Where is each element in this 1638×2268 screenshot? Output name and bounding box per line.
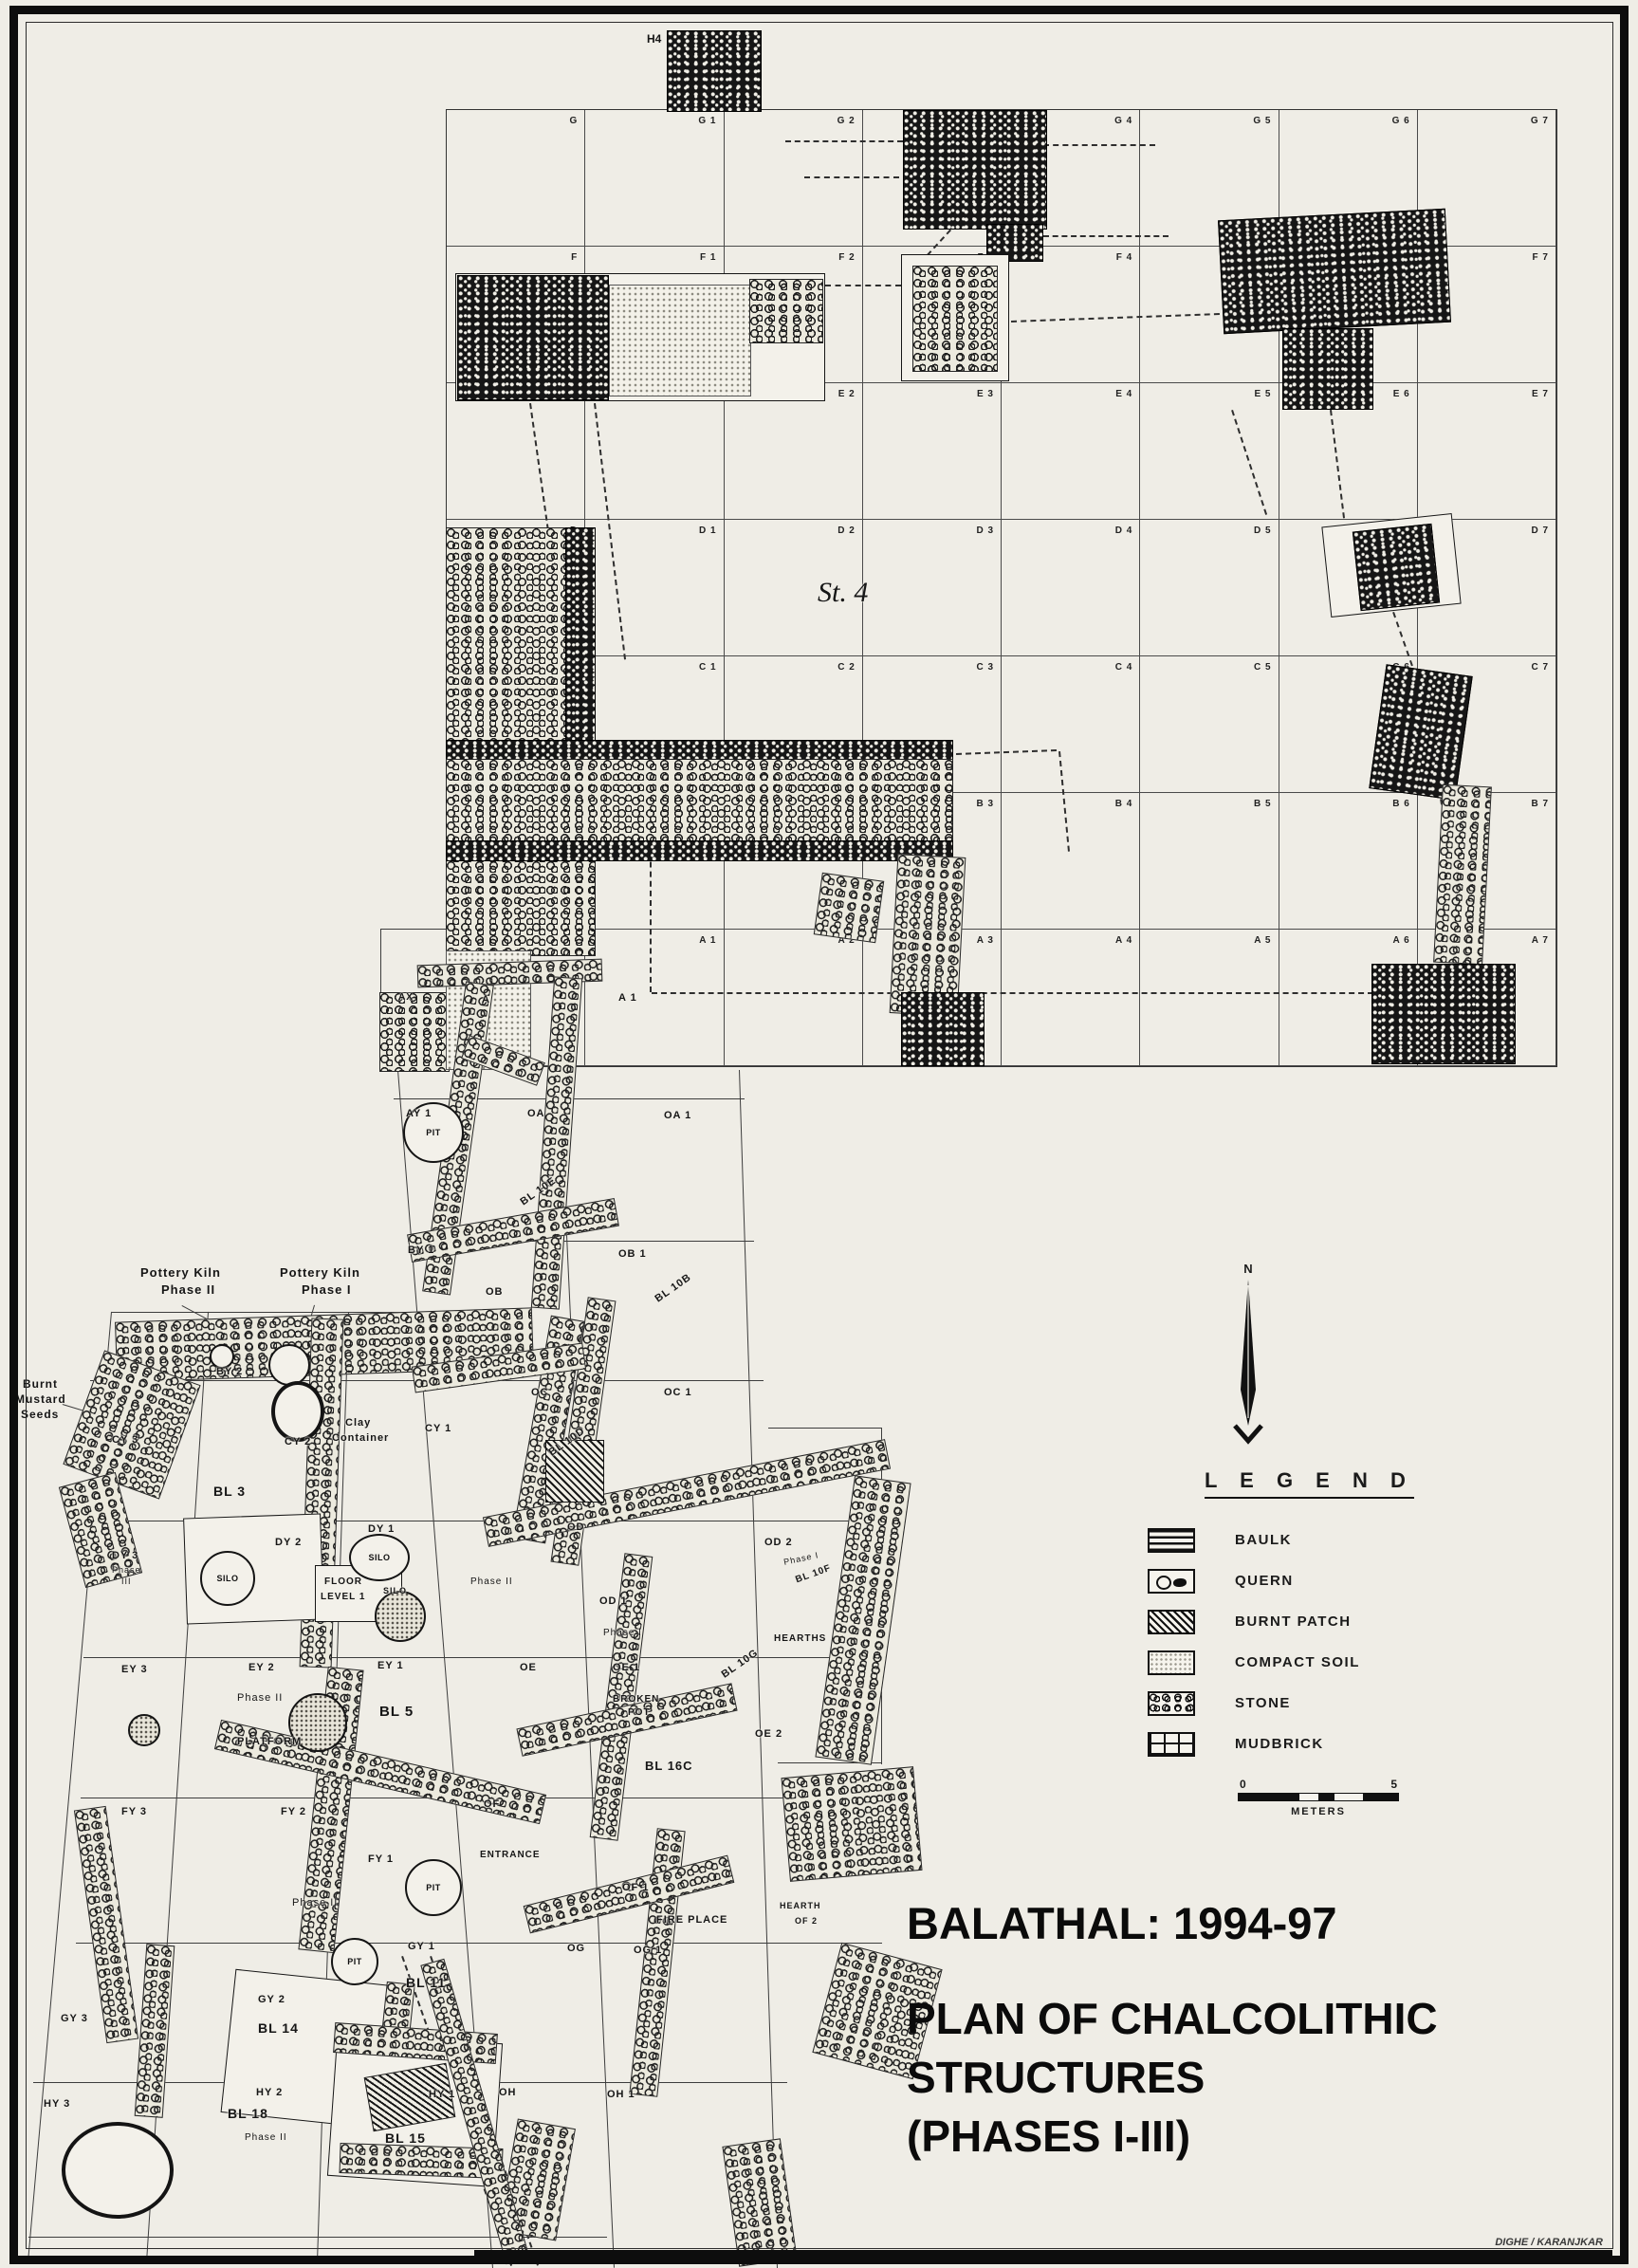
wall-feature (1218, 209, 1451, 334)
grid-cell-label: C 3 (976, 662, 994, 673)
grid-cell-label: C 7 (1531, 662, 1549, 673)
grid-cell-label: G 7 (1531, 116, 1549, 126)
annotation-bl-14: BL 14 (258, 2020, 299, 2036)
annotation-a: A (482, 994, 490, 1005)
wall-feature (903, 110, 1047, 230)
grid-cell-D3: D 3 (863, 520, 1002, 656)
annotation-bl-5: BL 5 (379, 1704, 414, 1720)
wall-feature (135, 1944, 175, 2118)
annotation-dy-2: DY 2 (275, 1537, 302, 1548)
scale-unit: METERS (1238, 1806, 1399, 1817)
annotation-of-1: OF 1 (622, 1882, 649, 1893)
annotation-phase-ii: Phase II (292, 1897, 338, 1908)
annotation-phase: Phase (112, 1565, 141, 1575)
wall-feature (722, 2138, 797, 2266)
annotation-pot: POT (628, 1707, 651, 1718)
plan-grid-line (76, 1943, 882, 1944)
north-arrow-icon (1224, 1276, 1273, 1456)
annotation-bl-11: BL 11 (406, 1975, 446, 1990)
grid-cell-label: G 1 (698, 116, 716, 126)
annotation-phase-ii: Phase II (237, 1692, 283, 1704)
structure-outline-dash (1043, 235, 1169, 237)
legend-item-mudbrick: MUDBRICK (1148, 1724, 1414, 1764)
legend-item-label: QUERN (1235, 1573, 1294, 1589)
annotation-silo: SILO (383, 1586, 407, 1595)
annotation-hy-1: HY 1 (429, 2089, 455, 2100)
grid-cell-label: F (571, 252, 578, 263)
annotation-ey-3: EY 3 (121, 1664, 148, 1675)
annotation-bl-10b: BL 10B (653, 1272, 694, 1305)
grid-cell-C4: C 4 (1002, 656, 1140, 793)
structure-outline-dash (825, 285, 901, 286)
annotation-od-2: OD 2 (764, 1537, 793, 1548)
drafter-credit: DIGHE / KARANJKAR (1356, 2237, 1603, 2248)
annotation-broken: BROKEN (613, 1694, 659, 1705)
grid-cell-label: B 5 (1254, 799, 1272, 809)
scale-bar: 0 5 METERS (1238, 1778, 1399, 1817)
annotation-level-1: LEVEL 1 (321, 1592, 365, 1602)
stone-swatch-icon (1148, 1691, 1195, 1716)
grid-cell-label: D 1 (699, 526, 717, 536)
annotation-by-1: BY 1 (408, 1245, 434, 1256)
legend-item-label: BURNT PATCH (1235, 1613, 1352, 1630)
grid-cell-label: E 6 (1393, 389, 1410, 399)
grid-cell-C5: C 5 (1140, 656, 1279, 793)
wall-feature (1369, 664, 1472, 801)
grid-cell-D5: D 5 (1140, 520, 1279, 656)
pit-feature: PIT (405, 1859, 462, 1916)
grid-cell-label: C 1 (699, 662, 717, 673)
grid-cell-label: A 1 (699, 935, 716, 946)
grid-cell-label: F 7 (1533, 252, 1549, 263)
structure-outline-dash (652, 992, 1373, 994)
grid-cell-E: E (447, 383, 585, 520)
burnt-patch-swatch-icon (1148, 1610, 1195, 1634)
structure-outline-dash (804, 176, 899, 178)
annotation-od: OD (567, 1521, 585, 1533)
wall-feature (457, 275, 609, 400)
silo-feature: SILO (200, 1551, 255, 1606)
scale-bar-rule (1238, 1793, 1399, 1801)
north-arrow: N (1224, 1262, 1273, 1461)
annotation-oe-1: OE 1 (613, 1662, 640, 1673)
annotation-burnt: Burnt (23, 1377, 58, 1391)
annotation-bl-15: BL 15 (385, 2130, 426, 2146)
legend-item-quern: QUERN (1148, 1560, 1414, 1601)
annotation-phase-i: Phase I (603, 1628, 642, 1638)
annotation-a-1: A 1 (618, 992, 637, 1004)
circular-feature (62, 2122, 174, 2219)
grid-cell-B4: B 4 (1002, 793, 1140, 930)
grid-cell-A5: A 5 (1140, 930, 1279, 1066)
grid-cell-label: B 3 (976, 799, 994, 809)
title-line-4: (PHASES I-III) (907, 2111, 1438, 2162)
scan-bottom-edge (474, 2250, 1612, 2261)
grid-cell-label: B 4 (1115, 799, 1133, 809)
structure-outline-dash (785, 140, 903, 142)
legend-item-baulk: BAULK (1148, 1520, 1414, 1560)
annotation-fy-3: FY 3 (121, 1806, 147, 1817)
grid-cell-label: B 7 (1531, 799, 1549, 809)
grid-cell-label: E 5 (1254, 389, 1271, 399)
annotation-ey-2: EY 2 (248, 1662, 275, 1673)
grid-cell-label: C 5 (1254, 662, 1272, 673)
grid-cell-G1: G 1 (585, 110, 724, 247)
annotation-ey-1: EY 1 (377, 1660, 404, 1671)
grid-cell-B6: B 6 (1279, 793, 1418, 930)
annotation-oe-2: OE 2 (755, 1728, 782, 1740)
annotation-phase-ii: Phase II (470, 1577, 513, 1587)
grid-cell-label: G 4 (1114, 116, 1132, 126)
plan-grid-line (739, 1070, 778, 2268)
wall-feature (379, 992, 450, 1072)
circular-feature (128, 1714, 160, 1746)
annotation-phase-i: Phase I (782, 1550, 819, 1567)
scale-start: 0 (1240, 1778, 1246, 1791)
trench-h4-label: H4 (647, 32, 661, 46)
circular-feature (268, 1344, 310, 1386)
grid-cell-A1: A 1 (585, 930, 724, 1066)
grid-cell-label: F 2 (838, 252, 855, 263)
annotation-ob: OB (486, 1286, 504, 1298)
circular-feature (375, 1591, 426, 1642)
wall-feature (1433, 784, 1492, 965)
pit-feature: PIT (331, 1938, 378, 1985)
grid-cell-label: F 1 (700, 252, 716, 263)
wall-feature (1353, 524, 1440, 611)
annotation-phase-ii: Phase II (245, 2132, 287, 2143)
annotation-oh: OH (499, 2087, 517, 2098)
annotation-iii: III (121, 1577, 132, 1586)
structure-4-label: St. 4 (818, 577, 868, 609)
legend-items: BAULKQUERNBURNT PATCHCOMPACT SOILSTONEMU… (1148, 1520, 1414, 1764)
grid-cell-label: A 5 (1254, 935, 1271, 946)
grid-cell-label: E 3 (977, 389, 994, 399)
legend-item-label: STONE (1235, 1695, 1291, 1711)
annotation-gy-3: GY 3 (61, 2013, 88, 2024)
wall-feature (912, 266, 998, 372)
annotation-bl-10f: BL 10F (794, 1563, 833, 1586)
annotation-oa-1: OA 1 (664, 1110, 691, 1121)
grid-cell-label: D 3 (976, 526, 994, 536)
annotation-pottery-kiln: Pottery Kiln (140, 1265, 221, 1280)
legend-item-stone: STONE (1148, 1683, 1414, 1724)
grid-cell-E5: E 5 (1140, 383, 1279, 520)
annotation-hy-3: HY 3 (44, 2098, 70, 2110)
grid-cell-label: C 4 (1115, 662, 1133, 673)
grid-cell-label: D 4 (1115, 526, 1133, 536)
grid-cell-G: G (447, 110, 585, 247)
annotation-og: OG (567, 1943, 585, 1954)
wall-feature (901, 992, 985, 1066)
structure-outline-dash (1043, 144, 1155, 146)
annotation-by-2: BY 2 (216, 1366, 243, 1377)
feature-label: SILO (216, 1574, 238, 1583)
mudbrick-swatch-icon (1148, 1732, 1195, 1757)
wall-feature (1371, 964, 1516, 1064)
silo-feature: SILO (349, 1534, 410, 1581)
feature-label: SILO (368, 1553, 390, 1562)
grid-cell-D1: D 1 (585, 520, 724, 656)
annotation-seeds: Seeds (21, 1408, 59, 1421)
legend-item-label: MUDBRICK (1235, 1736, 1324, 1752)
grid-cell-E3: E 3 (863, 383, 1002, 520)
grid-cell-E7: E 7 (1418, 383, 1556, 520)
compact-soil-swatch-icon (1148, 1650, 1195, 1675)
annotation-fy-2: FY 2 (281, 1806, 306, 1817)
annotation-ob-1: OB 1 (618, 1248, 647, 1260)
annotation-cy-3: CY 3 (112, 1434, 138, 1446)
circular-feature (271, 1381, 324, 1442)
annotation-cy-1: CY 1 (425, 1423, 451, 1434)
grid-cell-B5: B 5 (1140, 793, 1279, 930)
title-line-2: PLAN OF CHALCOLITHIC (907, 1993, 1438, 2044)
grid-cell-label: G 6 (1392, 116, 1410, 126)
annotation-hearth: HEARTH (780, 1901, 821, 1910)
annotation-bl-18: BL 18 (228, 2106, 268, 2121)
annotation-ax: AX (398, 992, 414, 1003)
legend-item-label: COMPACT SOIL (1235, 1654, 1360, 1670)
grid-cell-label: A 7 (1532, 935, 1549, 946)
grid-cell-label: A 3 (977, 935, 994, 946)
grid-cell-D4: D 4 (1002, 520, 1140, 656)
annotation-oe: OE (520, 1662, 537, 1673)
annotation-phase-ii: Phase II (161, 1282, 215, 1297)
annotation-og-1: OG 1 (634, 1945, 662, 1956)
annotation-bl-3: BL 3 (213, 1484, 246, 1499)
annotation-hy-2: HY 2 (256, 2087, 283, 2098)
wall-feature (781, 1766, 922, 1882)
grid-cell-label: D 2 (837, 526, 856, 536)
wall-feature (74, 1806, 138, 2043)
grid-cell-label: A 6 (1393, 935, 1410, 946)
annotation-dy-3: DY 3 (112, 1550, 138, 1561)
annotation-mustard: Mustard (15, 1392, 66, 1406)
quern-swatch-icon (1148, 1569, 1195, 1594)
wall-feature (446, 840, 953, 861)
legend-heading: L E G E N D (1205, 1468, 1414, 1499)
grid-cell-label: E 2 (838, 389, 856, 399)
grid-cell-E4: E 4 (1002, 383, 1140, 520)
legend-item-compact-soil: COMPACT SOIL (1148, 1642, 1414, 1683)
annotation-floor: FLOOR (324, 1577, 362, 1587)
wall-feature (815, 1475, 911, 1764)
title-block: BALATHAL: 1994-97 PLAN OF CHALCOLITHIC S… (907, 1897, 1438, 2162)
grid-cell-A2: A 2 (725, 930, 863, 1066)
grid-cell-label: F 4 (1116, 252, 1132, 263)
grid-cell-label: E 7 (1532, 389, 1549, 399)
annotation-oa: OA (527, 1108, 545, 1119)
grid-cell-A4: A 4 (1002, 930, 1140, 1066)
grid-cell-label: G 5 (1253, 116, 1271, 126)
wall-feature (667, 30, 762, 112)
baulk-swatch-icon (1148, 1528, 1195, 1553)
page-title: BALATHAL: 1994-97 (907, 1897, 1438, 1949)
annotation-clay: Clay (345, 1417, 371, 1429)
grid-cell-label: B 6 (1392, 799, 1410, 809)
grid-cell-label: E 4 (1115, 389, 1132, 399)
annotation-fire-place: FIRE PLACE (656, 1914, 727, 1926)
scale-end: 5 (1390, 1778, 1397, 1791)
annotation-platform: PLATFORM (237, 1736, 302, 1747)
annotation-fy-1: FY 1 (368, 1853, 394, 1865)
grid-cell-E2: E 2 (725, 383, 863, 520)
grid-cell-label: G (569, 116, 578, 126)
annotation-of-2: OF 2 (795, 1916, 818, 1926)
north-label: N (1224, 1262, 1273, 1276)
plan-grid-line (83, 1657, 882, 1658)
wall-feature (1282, 328, 1373, 410)
legend: L E G E N D BAULKQUERNBURNT PATCHCOMPACT… (1148, 1468, 1414, 1764)
wall-feature (609, 285, 751, 396)
grid-cell-label: C 2 (837, 662, 856, 673)
plan-grid-line (768, 1428, 882, 1429)
annotation-oc-1: OC 1 (664, 1387, 692, 1398)
grid-cell-F4: F 4 (1002, 247, 1140, 383)
annotation-oc: OC (531, 1387, 549, 1398)
annotation-gy-2: GY 2 (258, 1994, 285, 2005)
annotation-ay-1: AY 1 (406, 1108, 432, 1119)
annotation-dy-1: DY 1 (368, 1523, 395, 1535)
annotation-hearths: HEARTHS (774, 1633, 826, 1644)
wall-feature (814, 873, 885, 944)
annotation-cy-2: CY 2 (285, 1436, 311, 1447)
grid-cell-G2: G 2 (725, 110, 863, 247)
feature-label: PIT (347, 1957, 362, 1966)
wall-feature (446, 759, 953, 846)
annotation-container: Container (332, 1432, 389, 1444)
title-line-3: STRUCTURES (907, 2052, 1438, 2103)
grid-cell-label: D 7 (1531, 526, 1549, 536)
scanned-plan-page: { "page": {"credit": "DIGHE / KARANJKAR"… (0, 0, 1638, 2268)
plan-grid-line (381, 929, 446, 930)
annotation-bl-10g: BL 10G (720, 1647, 761, 1680)
annotation-oh-1: OH 1 (607, 2089, 635, 2100)
feature-label: PIT (426, 1883, 441, 1892)
annotation-gy-1: GY 1 (408, 1941, 435, 1952)
wall-feature (749, 279, 823, 343)
feature-label: PIT (426, 1128, 441, 1137)
grid-cell-label: G 2 (837, 116, 856, 126)
annotation-of: OF (484, 1798, 500, 1810)
grid-cell-label: D 5 (1254, 526, 1272, 536)
annotation-bl-16c: BL 16C (645, 1759, 693, 1773)
annotation-entrance: ENTRANCE (480, 1850, 541, 1860)
annotation-od-1: OD 1 (599, 1595, 628, 1607)
legend-item-burnt-patch: BURNT PATCH (1148, 1601, 1414, 1642)
grid-cell-label: A 4 (1115, 935, 1132, 946)
annotation-pottery-kiln: Pottery Kiln (280, 1265, 360, 1280)
annotation-phase-i: Phase I (302, 1282, 352, 1297)
legend-item-label: BAULK (1235, 1532, 1292, 1548)
